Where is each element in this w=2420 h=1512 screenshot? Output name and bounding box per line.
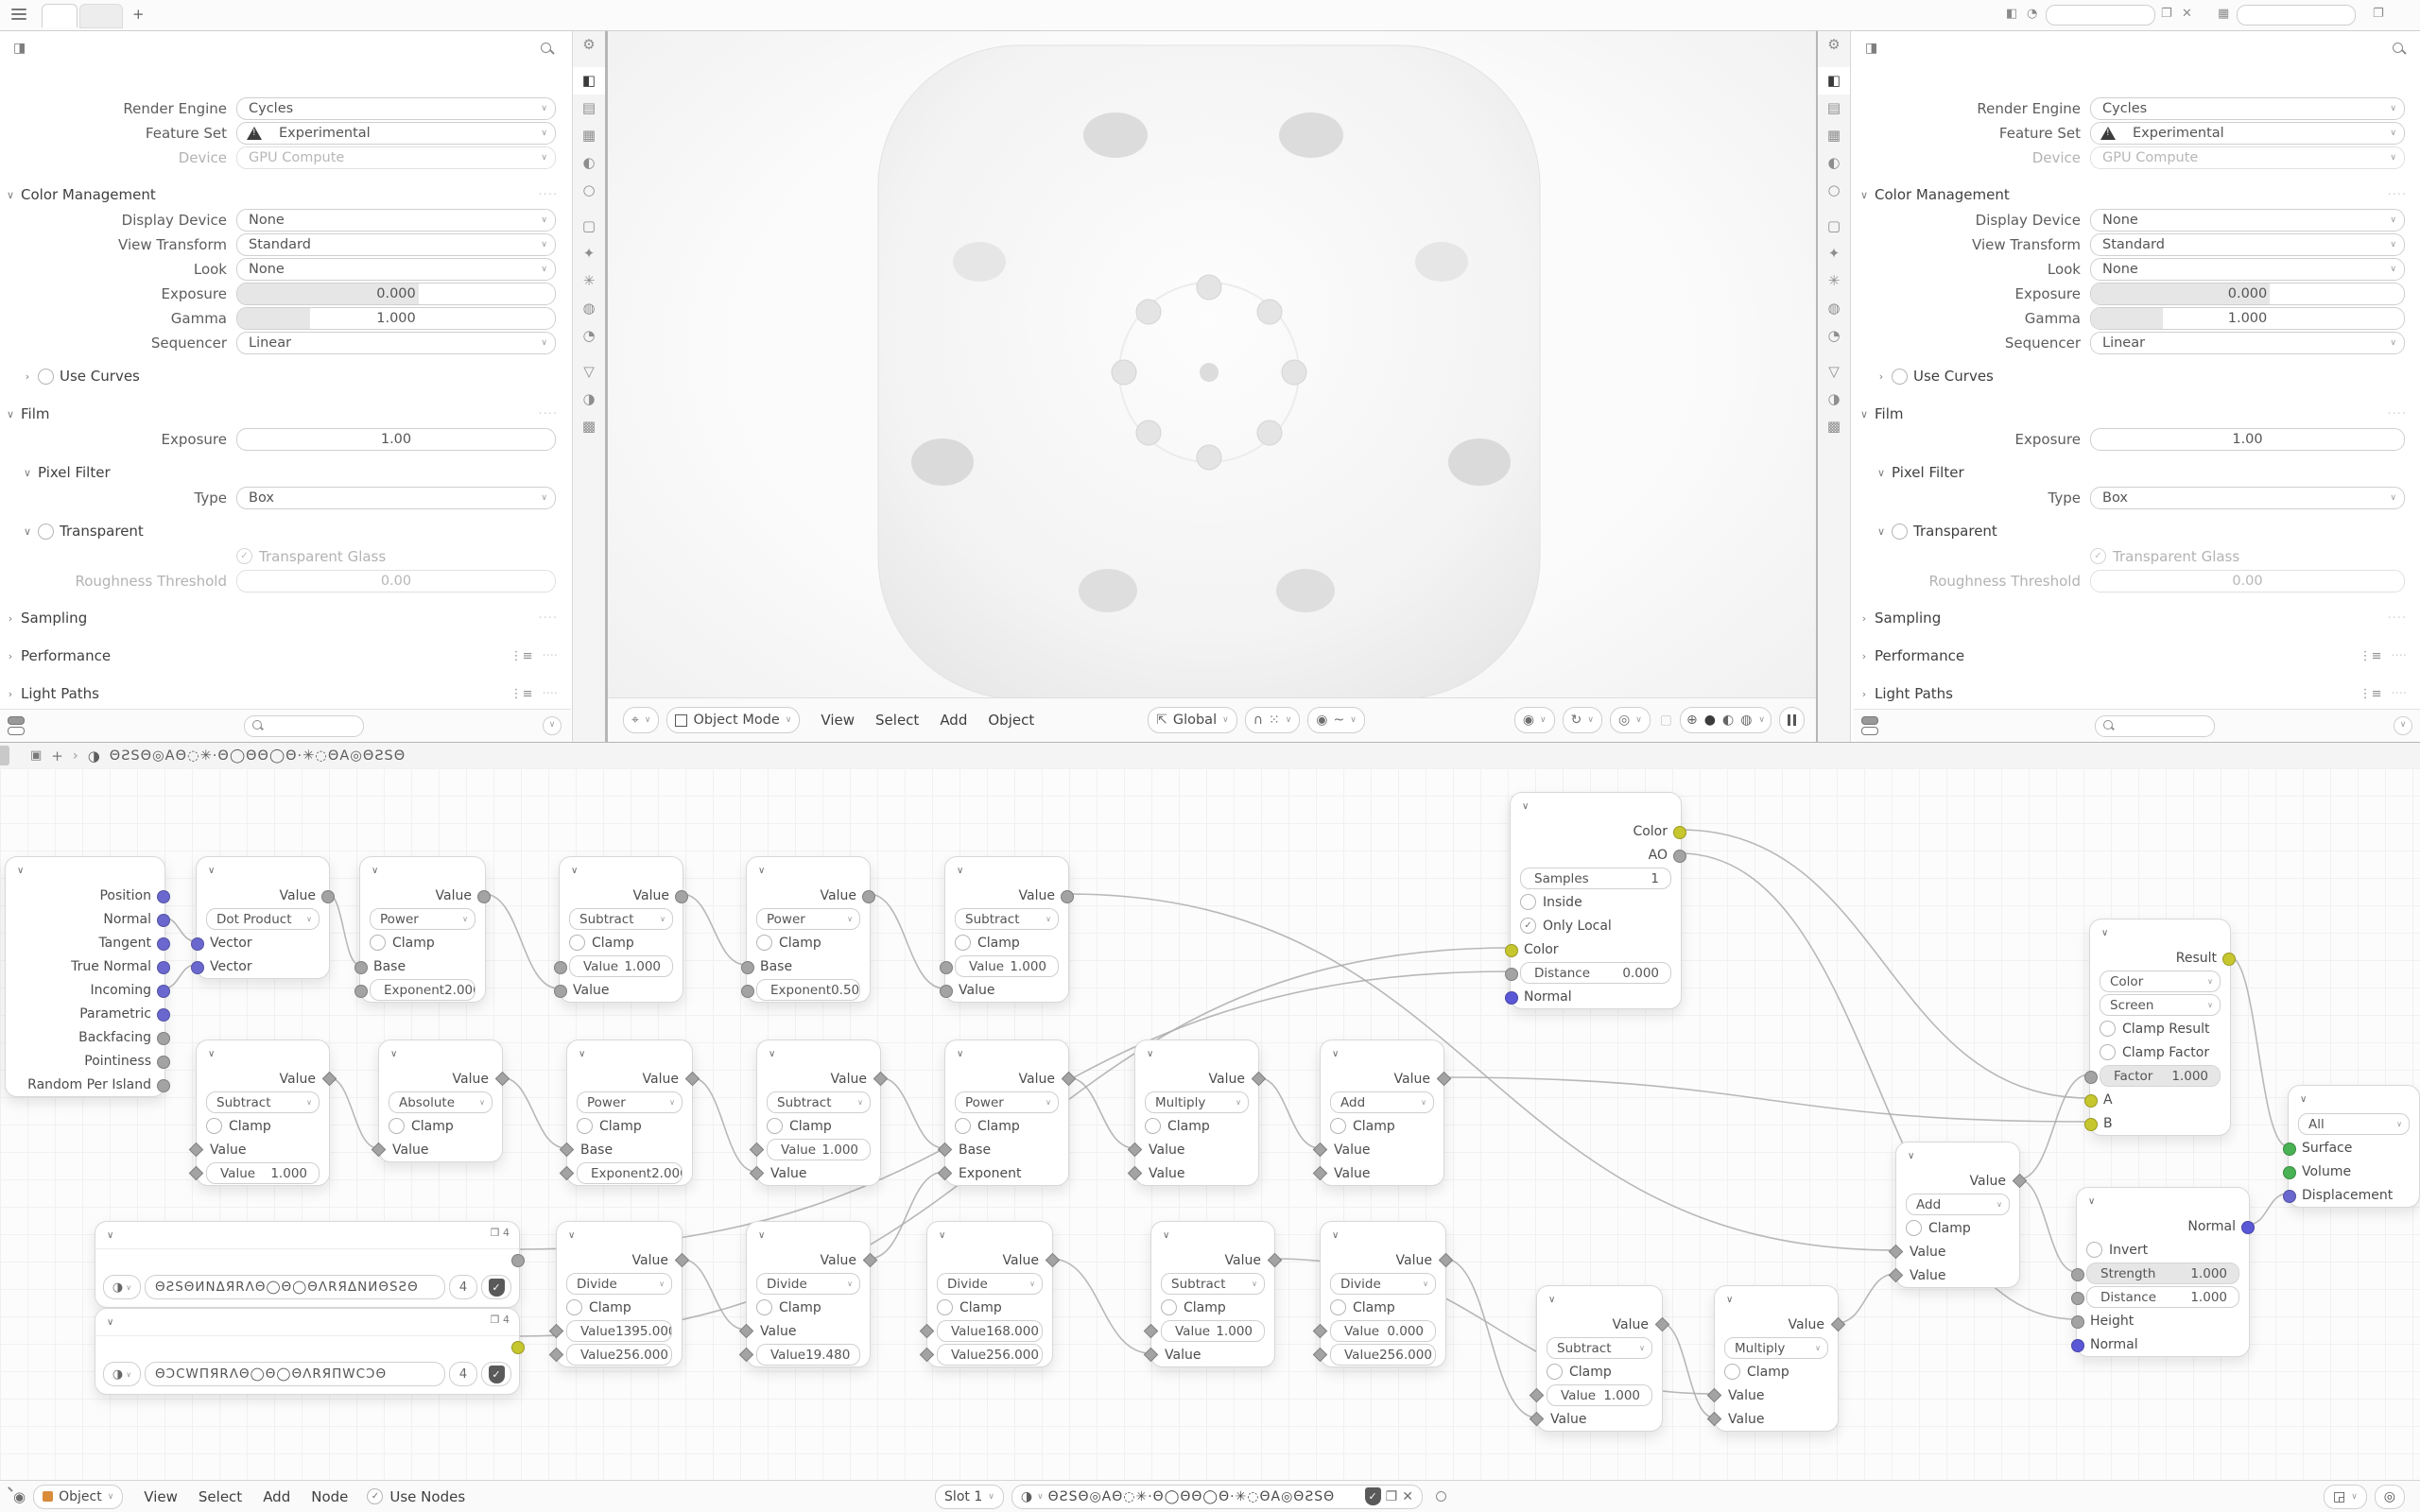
output-socket[interactable] bbox=[157, 914, 170, 927]
collapse-chevron-icon[interactable]: ∨ bbox=[107, 1317, 113, 1328]
subtract-select[interactable]: Subtract∨ bbox=[1547, 1337, 1652, 1359]
pin-icon-right[interactable] bbox=[2393, 43, 2403, 53]
exponent-value-field[interactable]: Exponent0.500 bbox=[756, 979, 860, 1001]
collapse-chevron-icon[interactable]: ∨ bbox=[1908, 1151, 1914, 1161]
node-math-subtract-1[interactable]: ∨ValueSubtract∨ClampValue1.000Value bbox=[559, 856, 683, 1003]
power-select[interactable]: Power∨ bbox=[577, 1091, 683, 1113]
use-curves-checkbox[interactable] bbox=[1892, 369, 1908, 385]
input-socket[interactable] bbox=[1505, 968, 1518, 981]
properties-tab-physics-icon[interactable]: ◍ bbox=[1818, 295, 1850, 322]
distance-value-field[interactable]: Distance0.000 bbox=[1520, 962, 1671, 984]
output-socket[interactable] bbox=[1061, 890, 1074, 903]
menu-icon[interactable] bbox=[11, 9, 26, 21]
value-value-field[interactable]: Value1.000 bbox=[569, 955, 673, 977]
power-select[interactable]: Power∨ bbox=[370, 908, 475, 930]
absolute-select[interactable]: Absolute∨ bbox=[389, 1091, 493, 1113]
clamp-checkbox[interactable] bbox=[955, 1118, 971, 1134]
collapse-chevron-icon[interactable]: ∨ bbox=[2088, 1196, 2095, 1207]
clamp-checkbox[interactable] bbox=[767, 1118, 783, 1134]
output-socket[interactable] bbox=[157, 1032, 170, 1045]
preset-icon[interactable]: ⋮≡ bbox=[2359, 687, 2382, 701]
material-slot-selector[interactable]: Slot 1∨ bbox=[935, 1485, 1004, 1509]
shading-solid-icon[interactable]: ● bbox=[1704, 713, 1716, 728]
collapse-chevron-icon[interactable]: ∨ bbox=[390, 1049, 397, 1059]
collapse-chevron-icon[interactable]: ∨ bbox=[208, 1049, 215, 1059]
unlink-scene-icon[interactable]: ✕ bbox=[2182, 7, 2192, 21]
output-socket[interactable] bbox=[675, 890, 688, 903]
add-workspace-button[interactable]: + bbox=[132, 6, 145, 23]
properties-tab-object-data-icon[interactable]: ▽ bbox=[573, 358, 605, 386]
input-socket[interactable] bbox=[2071, 1315, 2084, 1329]
image-user-count[interactable]: 4 bbox=[449, 1275, 477, 1299]
clamp-checkbox[interactable] bbox=[937, 1299, 953, 1315]
clamp-checkbox[interactable] bbox=[1724, 1364, 1740, 1380]
section-sampling[interactable]: ›Sampling···· bbox=[1854, 606, 2420, 630]
collapse-chevron-icon[interactable]: ∨ bbox=[2101, 928, 2108, 938]
output-socket[interactable] bbox=[157, 985, 170, 998]
node-math-subtract-2[interactable]: ∨ValueSubtract∨ClampValue1.000Value bbox=[944, 856, 1069, 1003]
pause-button[interactable] bbox=[1779, 707, 1805, 733]
collapse-chevron-icon[interactable]: ∨ bbox=[957, 866, 963, 876]
input-socket[interactable] bbox=[554, 961, 567, 974]
scene-new-icon[interactable]: ◔ bbox=[2027, 7, 2037, 21]
collapse-chevron-icon[interactable]: ∨ bbox=[208, 866, 215, 876]
properties-tab-particles-icon[interactable]: ✳ bbox=[573, 267, 605, 295]
node-image-texture-2[interactable]: ∨❐ 4◑∨ΘƆCWΠЯRΛΘ◯Θ◯ΘΛRЯΠWCƆΘ4✓ bbox=[95, 1308, 520, 1395]
section-pixel-filter[interactable]: ∨Pixel Filter bbox=[17, 460, 571, 485]
color-select[interactable]: Color∨ bbox=[2100, 971, 2221, 992]
roughness-threshold-field[interactable]: 0.00 bbox=[2090, 570, 2405, 593]
copy-material-icon[interactable]: ❐ bbox=[1386, 1489, 1398, 1504]
editor-type-selector[interactable]: ⌖∨ bbox=[623, 707, 659, 733]
input-socket[interactable] bbox=[2084, 1094, 2098, 1108]
input-socket[interactable] bbox=[554, 985, 567, 998]
properties-tab-render-icon[interactable]: ◧ bbox=[573, 67, 605, 94]
feature-set-dropdown[interactable]: Experimental∨ bbox=[2090, 122, 2405, 145]
power-select[interactable]: Power∨ bbox=[955, 1091, 1059, 1113]
feature-set-dropdown[interactable]: Experimental∨ bbox=[236, 122, 556, 145]
properties-tab-object-icon[interactable]: ▢ bbox=[573, 213, 605, 240]
roughness-threshold-field[interactable]: 0.00 bbox=[236, 570, 556, 593]
scene-icon[interactable]: ◧ bbox=[2006, 7, 2017, 21]
shading-rendered-icon[interactable]: ◍ bbox=[1740, 713, 1752, 728]
section-transparent[interactable]: ∨Transparent bbox=[17, 519, 571, 543]
properties-tab-tool-icon[interactable]: ⚙ bbox=[573, 31, 605, 59]
image-browse-button[interactable]: ◑∨ bbox=[103, 1362, 141, 1386]
pin-icon[interactable] bbox=[541, 43, 551, 53]
shading-material-icon[interactable]: ◐ bbox=[1722, 713, 1734, 728]
overlays-toggle[interactable]: ◎∨ bbox=[1610, 707, 1651, 733]
output-socket[interactable] bbox=[511, 1341, 525, 1354]
input-socket[interactable] bbox=[354, 961, 368, 974]
output-socket[interactable] bbox=[157, 937, 170, 951]
properties-tab-constraints-icon[interactable]: ◔ bbox=[1818, 322, 1850, 350]
input-socket[interactable] bbox=[940, 961, 953, 974]
menu-select[interactable]: Select bbox=[875, 712, 919, 729]
collapse-chevron-icon[interactable]: ∨ bbox=[758, 1230, 765, 1241]
properties-editor-type-icon[interactable]: ◨ bbox=[13, 41, 26, 56]
proportional-editing[interactable]: ◉~∨ bbox=[1307, 707, 1365, 733]
node-vector-math-dot-product[interactable]: ∨ValueDot Product∨VectorVector bbox=[196, 856, 330, 979]
type-dropdown[interactable]: Box∨ bbox=[2090, 487, 2405, 509]
properties-tab-world-icon[interactable]: ○ bbox=[573, 177, 605, 204]
properties-tab-output-icon[interactable]: ▤ bbox=[573, 94, 605, 122]
use-nodes-checkbox[interactable]: ✓ bbox=[367, 1488, 383, 1504]
look-dropdown[interactable]: None∨ bbox=[2090, 258, 2405, 281]
output-socket[interactable] bbox=[862, 890, 875, 903]
shading-wireframe-icon[interactable]: ⊕ bbox=[1686, 713, 1698, 728]
value-value-field[interactable]: Value0.000 bbox=[1330, 1320, 1436, 1342]
input-socket[interactable] bbox=[940, 985, 953, 998]
clamp-checkbox[interactable] bbox=[577, 1118, 593, 1134]
gizmos-toggle[interactable]: ↻∨ bbox=[1563, 707, 1602, 733]
node-ambient-occlusion[interactable]: ∨ColorAOSamples1Inside✓Only LocalColorDi… bbox=[1510, 792, 1682, 1009]
clamp-checkbox[interactable] bbox=[1330, 1118, 1346, 1134]
node-math-subtract-6[interactable]: ∨ValueSubtract∨ClampValue1.000Value bbox=[1536, 1285, 1663, 1432]
filter-icon-right[interactable] bbox=[1861, 716, 1884, 733]
output-socket[interactable] bbox=[157, 961, 170, 974]
inside-checkbox[interactable] bbox=[1520, 894, 1536, 910]
render-engine-dropdown[interactable]: Cycles∨ bbox=[2090, 97, 2405, 120]
properties-tab-particles-icon[interactable]: ✳ bbox=[1818, 267, 1850, 295]
properties-editor-type-icon-right[interactable]: ◨ bbox=[1865, 41, 1877, 56]
image-user-count[interactable]: 4 bbox=[449, 1362, 477, 1386]
value-value-field[interactable]: Value256.000 bbox=[1330, 1344, 1436, 1366]
samples-value-field[interactable]: Samples1 bbox=[1520, 868, 1671, 889]
collapse-chevron-icon[interactable]: ∨ bbox=[758, 866, 765, 876]
pin-material-icon[interactable] bbox=[1436, 1491, 1446, 1502]
output-socket[interactable] bbox=[157, 1079, 170, 1092]
display-device-dropdown[interactable]: None∨ bbox=[2090, 209, 2405, 232]
input-socket[interactable] bbox=[2283, 1143, 2296, 1156]
section-use-curves[interactable]: ›Use Curves bbox=[17, 364, 571, 388]
clamp-checkbox[interactable] bbox=[566, 1299, 582, 1315]
properties-tab-modifiers-icon[interactable]: ✦ bbox=[1818, 240, 1850, 267]
clamp-checkbox[interactable] bbox=[1145, 1118, 1161, 1134]
footer-snap-button[interactable]: ◲∨ bbox=[2324, 1485, 2367, 1509]
value-value-field[interactable]: Value256.000 bbox=[566, 1344, 672, 1366]
value-value-field[interactable]: Value168.000 bbox=[937, 1320, 1043, 1342]
section-pixel-filter[interactable]: ∨Pixel Filter bbox=[1871, 460, 2420, 485]
node-material-output[interactable]: ∨All∨SurfaceVolumeDisplacement bbox=[2288, 1085, 2420, 1208]
transparent-glass-checkbox[interactable]: ✓ bbox=[236, 548, 252, 564]
section-transparent[interactable]: ∨Transparent bbox=[1871, 519, 2420, 543]
subtract-select[interactable]: Subtract∨ bbox=[955, 908, 1059, 930]
strength-value-field[interactable]: Strength1.000 bbox=[2086, 1263, 2239, 1284]
output-socket[interactable] bbox=[157, 890, 170, 903]
node-mix-color[interactable]: ∨ResultColor∨Screen∨Clamp ResultClamp Fa… bbox=[2089, 919, 2231, 1136]
properties-tab-object-icon[interactable]: ▢ bbox=[1818, 213, 1850, 240]
node-image-texture-1[interactable]: ∨❐ 4◑∨ΘƧSΘИΝΔЯRΛΘ◯Θ◯ΘΛRЯΔΝИΘSƧΘ4✓ bbox=[95, 1221, 520, 1308]
properties-tab-tool-icon[interactable]: ⚙ bbox=[1818, 31, 1850, 59]
distance-value-field[interactable]: Distance1.000 bbox=[2086, 1286, 2239, 1308]
transparent-glass-checkbox[interactable]: ✓ bbox=[2090, 548, 2106, 564]
output-socket[interactable] bbox=[2222, 953, 2236, 966]
snap-toggle[interactable]: ∩⁙∨ bbox=[1245, 707, 1301, 733]
view-layer-icon[interactable]: ▦ bbox=[2218, 7, 2229, 21]
clamp-checkbox[interactable] bbox=[756, 1299, 772, 1315]
value-value-field[interactable]: Value1.000 bbox=[767, 1139, 871, 1160]
exponent-value-field[interactable]: Exponent2.000 bbox=[577, 1162, 683, 1184]
shader-node-editor[interactable]: ▣ + › ◑ ΘƧSΘ◎AΘ◌✳·Θ◯ΘΘ◯Θ·✳◌ΘA◎ΘƧSΘ ∨Posi… bbox=[0, 743, 2420, 1512]
all-select[interactable]: All∨ bbox=[2298, 1113, 2410, 1135]
xray-toggle-icon[interactable]: ▢ bbox=[1660, 713, 1672, 728]
collapse-chevron-icon[interactable]: ∨ bbox=[571, 866, 578, 876]
input-socket[interactable] bbox=[741, 961, 754, 974]
input-socket[interactable] bbox=[354, 985, 368, 998]
sequencer-dropdown[interactable]: Linear∨ bbox=[2090, 332, 2405, 354]
collapse-chevron-icon[interactable]: ∨ bbox=[107, 1230, 113, 1241]
power-select[interactable]: Power∨ bbox=[756, 908, 860, 930]
move-icon[interactable]: + bbox=[51, 747, 63, 765]
properties-tab-material-icon[interactable]: ◑ bbox=[1818, 386, 1850, 413]
search-input[interactable] bbox=[244, 715, 364, 737]
footer-overlay-button[interactable]: ◎ bbox=[2375, 1485, 2405, 1509]
fake-user-button[interactable]: ✓ bbox=[481, 1275, 511, 1299]
section-performance[interactable]: ›Performance⋮≡···· bbox=[1854, 644, 2420, 668]
properties-tab-view-layer-icon[interactable]: ▦ bbox=[1818, 122, 1850, 149]
image-name-field[interactable]: ΘƧSΘИΝΔЯRΛΘ◯Θ◯ΘΛRЯΔΝИΘSƧΘ bbox=[145, 1275, 445, 1299]
collapse-chevron-icon[interactable]: ∨ bbox=[1522, 801, 1529, 812]
input-socket[interactable] bbox=[1505, 991, 1518, 1005]
divide-select[interactable]: Divide∨ bbox=[1330, 1273, 1436, 1295]
clamp-checkbox[interactable] bbox=[1906, 1220, 1922, 1236]
properties-tab-physics-icon[interactable]: ◍ bbox=[573, 295, 605, 322]
node-bump[interactable]: ∨NormalInvertStrength1.000Distance1.000H… bbox=[2076, 1187, 2250, 1357]
node-math-subtract-5[interactable]: ∨ValueSubtract∨ClampValue1.000Value bbox=[1150, 1221, 1275, 1367]
preset-icon[interactable]: ⋮≡ bbox=[510, 649, 533, 663]
options-chevron-icon-right[interactable]: ∨ bbox=[2394, 716, 2412, 735]
input-socket[interactable] bbox=[2071, 1268, 2084, 1281]
node-math-divide-3[interactable]: ∨ValueDivide∨ClampValue168.000Value256.0… bbox=[926, 1221, 1053, 1367]
preset-icon[interactable]: ⋮≡ bbox=[510, 687, 533, 701]
screen-select[interactable]: Screen∨ bbox=[2100, 994, 2221, 1016]
workspace-tab-2[interactable] bbox=[79, 4, 123, 28]
section-color-management[interactable]: ∨Color Management···· bbox=[1854, 182, 2420, 207]
view-transform-dropdown[interactable]: Standard∨ bbox=[236, 233, 556, 256]
node-math-add-2[interactable]: ∨ValueAdd∨ClampValueValue bbox=[1895, 1142, 2020, 1288]
collapse-chevron-icon[interactable]: ∨ bbox=[957, 1049, 963, 1059]
node-math-add-1[interactable]: ∨ValueAdd∨ClampValueValue bbox=[1320, 1039, 1444, 1186]
properties-tab-object-data-icon[interactable]: ▽ bbox=[1818, 358, 1850, 386]
output-socket[interactable] bbox=[157, 1008, 170, 1022]
shader-context-selector[interactable]: Object∨ bbox=[33, 1485, 123, 1509]
device-dropdown[interactable]: GPU Compute∨ bbox=[2090, 146, 2405, 169]
invert-checkbox[interactable] bbox=[2086, 1242, 2102, 1258]
add-select[interactable]: Add∨ bbox=[1906, 1194, 2010, 1215]
add-select[interactable]: Add∨ bbox=[1330, 1091, 1434, 1113]
exposure-slider[interactable]: 0.000 bbox=[2090, 283, 2405, 305]
properties-tab-material-icon[interactable]: ◑ bbox=[573, 386, 605, 413]
workspace-tab-1[interactable] bbox=[42, 4, 78, 27]
section-film[interactable]: ∨Film···· bbox=[0, 402, 571, 426]
properties-tab-texture-icon[interactable]: ▩ bbox=[573, 413, 605, 440]
input-socket[interactable] bbox=[2084, 1118, 2098, 1131]
collapse-chevron-icon[interactable]: ∨ bbox=[2300, 1094, 2307, 1105]
collapse-chevron-icon[interactable]: ∨ bbox=[939, 1230, 945, 1241]
value-value-field[interactable]: Value1.000 bbox=[1161, 1320, 1265, 1342]
properties-tab-constraints-icon[interactable]: ◔ bbox=[573, 322, 605, 350]
node-menu-node[interactable]: Node bbox=[311, 1488, 348, 1505]
section-light-paths[interactable]: ›Light Paths⋮≡···· bbox=[0, 681, 571, 706]
look-dropdown[interactable]: None∨ bbox=[236, 258, 556, 281]
section-sampling[interactable]: ›Sampling···· bbox=[0, 606, 571, 630]
search-input-right[interactable] bbox=[2095, 715, 2215, 737]
node-math-multiply-1[interactable]: ∨ValueMultiply∨ClampValueValue bbox=[1134, 1039, 1259, 1186]
use-curves-checkbox[interactable] bbox=[38, 369, 54, 385]
clamp-checkbox[interactable] bbox=[1161, 1299, 1177, 1315]
exposure-slider[interactable]: 0.000 bbox=[236, 283, 556, 305]
section-use-curves[interactable]: ›Use Curves bbox=[1871, 364, 2420, 388]
value-value-field[interactable]: Value256.000 bbox=[937, 1344, 1043, 1366]
shader-type-icon[interactable]: ◉ bbox=[13, 1488, 26, 1505]
collapse-chevron-icon[interactable]: ∨ bbox=[1147, 1049, 1153, 1059]
transparent-checkbox[interactable] bbox=[1892, 524, 1908, 540]
menu-object[interactable]: Object bbox=[988, 712, 1034, 729]
multiply-select[interactable]: Multiply∨ bbox=[1145, 1091, 1249, 1113]
properties-tab-modifiers-icon[interactable]: ✦ bbox=[573, 240, 605, 267]
input-socket[interactable] bbox=[191, 937, 204, 951]
gamma-slider[interactable]: 1.000 bbox=[2090, 307, 2405, 330]
node-math-subtract-4[interactable]: ∨ValueSubtract∨ClampValue1.000Value bbox=[756, 1039, 881, 1186]
section-color-management[interactable]: ∨Color Management···· bbox=[0, 182, 571, 207]
collapse-chevron-icon[interactable]: ∨ bbox=[372, 866, 378, 876]
collapse-chevron-icon[interactable]: ∨ bbox=[1726, 1295, 1733, 1305]
viewport-3d[interactable]: ⌖∨ Object Mode∨ View Select Add Object ⇱… bbox=[608, 31, 1816, 742]
subtract-select[interactable]: Subtract∨ bbox=[767, 1091, 871, 1113]
frame-icon[interactable]: ▣ bbox=[30, 748, 42, 763]
subtract-select[interactable]: Subtract∨ bbox=[206, 1091, 320, 1113]
clamp-checkbox[interactable] bbox=[569, 935, 585, 951]
value-value-field[interactable]: Value1395.000 bbox=[566, 1320, 672, 1342]
node-math-subtract-3[interactable]: ∨ValueSubtract∨ClampValueValue1.000 bbox=[196, 1039, 330, 1186]
output-socket[interactable] bbox=[1673, 850, 1686, 863]
collapse-chevron-icon[interactable]: ∨ bbox=[17, 866, 24, 876]
clamp-factor-checkbox[interactable] bbox=[2100, 1044, 2116, 1060]
section-film[interactable]: ∨Film···· bbox=[1854, 402, 2420, 426]
input-socket[interactable] bbox=[2283, 1166, 2296, 1179]
output-socket[interactable] bbox=[477, 890, 491, 903]
render-engine-dropdown[interactable]: Cycles∨ bbox=[236, 97, 556, 120]
clamp-checkbox[interactable] bbox=[370, 935, 386, 951]
node-math-divide-1[interactable]: ∨ValueDivide∨ClampValue1395.000Value256.… bbox=[556, 1221, 683, 1367]
value-value-field[interactable]: Value1.000 bbox=[955, 955, 1059, 977]
clamp-checkbox[interactable] bbox=[206, 1118, 222, 1134]
value-value-field[interactable]: Value1.000 bbox=[1547, 1384, 1652, 1406]
node-canvas[interactable]: ∨PositionNormalTangentTrue NormalIncomin… bbox=[0, 768, 2420, 1481]
material-icon[interactable]: ◑ bbox=[1021, 1489, 1032, 1504]
divide-select[interactable]: Divide∨ bbox=[566, 1273, 672, 1295]
filter-icon[interactable] bbox=[8, 716, 30, 733]
divide-select[interactable]: Divide∨ bbox=[937, 1273, 1043, 1295]
collapse-chevron-icon[interactable]: ∨ bbox=[1548, 1295, 1555, 1305]
output-socket[interactable] bbox=[2241, 1221, 2255, 1234]
shading-chevron-icon[interactable]: ∨ bbox=[1758, 715, 1765, 725]
multiply-select[interactable]: Multiply∨ bbox=[1724, 1337, 1828, 1359]
input-socket[interactable] bbox=[2071, 1292, 2084, 1305]
fake-user-button[interactable]: ✓ bbox=[481, 1362, 511, 1386]
properties-tab-texture-icon[interactable]: ▩ bbox=[1818, 413, 1850, 440]
input-socket[interactable] bbox=[2283, 1190, 2296, 1203]
panel-notch[interactable] bbox=[0, 746, 9, 765]
value-value-field[interactable]: Value1.000 bbox=[206, 1162, 320, 1184]
clamp-checkbox[interactable] bbox=[756, 935, 772, 951]
collapse-chevron-icon[interactable]: ∨ bbox=[1163, 1230, 1169, 1241]
transparent-checkbox[interactable] bbox=[38, 524, 54, 540]
collapse-chevron-icon[interactable]: ∨ bbox=[568, 1230, 575, 1241]
view-transform-dropdown[interactable]: Standard∨ bbox=[2090, 233, 2405, 256]
subtract-select[interactable]: Subtract∨ bbox=[1161, 1273, 1265, 1295]
properties-tab-output-icon[interactable]: ▤ bbox=[1818, 94, 1850, 122]
sequencer-dropdown[interactable]: Linear∨ bbox=[236, 332, 556, 354]
collapse-chevron-icon[interactable]: ∨ bbox=[1332, 1049, 1339, 1059]
section-light-paths[interactable]: ›Light Paths⋮≡···· bbox=[1854, 681, 2420, 706]
input-socket[interactable] bbox=[2084, 1071, 2098, 1084]
menu-view[interactable]: View bbox=[821, 712, 855, 729]
node-math-divide-4[interactable]: ∨ValueDivide∨ClampValue0.000Value256.000 bbox=[1320, 1221, 1446, 1367]
image-name-field[interactable]: ΘƆCWΠЯRΛΘ◯Θ◯ΘΛRЯΠWCƆΘ bbox=[145, 1362, 445, 1386]
copy-scene-icon[interactable]: ❐ bbox=[2161, 7, 2172, 21]
divide-select[interactable]: Divide∨ bbox=[756, 1273, 860, 1295]
mode-selector[interactable]: Object Mode∨ bbox=[666, 707, 800, 733]
node-geometry[interactable]: ∨PositionNormalTangentTrue NormalIncomin… bbox=[5, 856, 165, 1097]
properties-tab-scene-icon[interactable]: ◐ bbox=[1818, 149, 1850, 177]
clamp-checkbox[interactable] bbox=[955, 935, 971, 951]
view-layer-name-field[interactable] bbox=[2237, 5, 2356, 26]
fake-user-shield-icon[interactable]: ✓ bbox=[1365, 1487, 1381, 1505]
only-local-checkbox[interactable]: ✓ bbox=[1520, 918, 1536, 934]
node-menu-add[interactable]: Add bbox=[263, 1488, 290, 1505]
dot-product-select[interactable]: Dot Product∨ bbox=[206, 908, 320, 930]
material-name-field[interactable]: ΘƧSΘ◎AΘ◌✳·Θ◯ΘΘ◯Θ·✳◌ΘA◎ΘƧSΘ bbox=[1048, 1489, 1360, 1504]
node-math-multiply-2[interactable]: ∨ValueMultiply∨ClampValueValue bbox=[1714, 1285, 1839, 1432]
new-view-layer-icon[interactable]: ❐ bbox=[2373, 7, 2384, 21]
clamp-checkbox[interactable] bbox=[1547, 1364, 1563, 1380]
unlink-material-icon[interactable]: ✕ bbox=[1402, 1489, 1413, 1504]
clamp-checkbox[interactable] bbox=[389, 1118, 405, 1134]
device-dropdown[interactable]: GPU Compute∨ bbox=[236, 146, 556, 169]
properties-tab-render-icon[interactable]: ◧ bbox=[1818, 67, 1850, 94]
gamma-slider[interactable]: 1.000 bbox=[236, 307, 556, 330]
collapse-chevron-icon[interactable]: ∨ bbox=[579, 1049, 585, 1059]
exposure-field[interactable]: 1.00 bbox=[2090, 428, 2405, 451]
node-math-power-2[interactable]: ∨ValuePower∨ClampBaseExponent0.500 bbox=[746, 856, 871, 1003]
input-socket[interactable] bbox=[2071, 1339, 2084, 1352]
input-socket[interactable] bbox=[191, 961, 204, 974]
transform-orientation[interactable]: ⇱Global∨ bbox=[1148, 707, 1237, 733]
clamp-result-checkbox[interactable] bbox=[2100, 1021, 2116, 1037]
clamp-checkbox[interactable] bbox=[1330, 1299, 1346, 1315]
display-device-dropdown[interactable]: None∨ bbox=[236, 209, 556, 232]
factor-value-field[interactable]: Factor1.000 bbox=[2100, 1065, 2221, 1087]
output-socket[interactable] bbox=[321, 890, 335, 903]
node-menu-view[interactable]: View bbox=[144, 1488, 178, 1505]
node-math-power-4[interactable]: ∨ValuePower∨ClampBaseExponent bbox=[944, 1039, 1069, 1186]
options-chevron-icon[interactable]: ∨ bbox=[543, 716, 562, 735]
properties-tab-world-icon[interactable]: ○ bbox=[1818, 177, 1850, 204]
node-math-absolute[interactable]: ∨ValueAbsolute∨ClampValue bbox=[378, 1039, 503, 1162]
exponent-value-field[interactable]: Exponent2.000 bbox=[370, 979, 475, 1001]
output-socket[interactable] bbox=[511, 1254, 525, 1267]
collapse-chevron-icon[interactable]: ∨ bbox=[769, 1049, 775, 1059]
image-browse-button[interactable]: ◑∨ bbox=[103, 1275, 141, 1299]
output-socket[interactable] bbox=[1673, 826, 1686, 839]
input-socket[interactable] bbox=[1505, 944, 1518, 957]
subtract-select[interactable]: Subtract∨ bbox=[569, 908, 673, 930]
properties-tab-view-layer-icon[interactable]: ▦ bbox=[573, 122, 605, 149]
preset-icon[interactable]: ⋮≡ bbox=[2359, 649, 2382, 663]
menu-add[interactable]: Add bbox=[940, 712, 967, 729]
